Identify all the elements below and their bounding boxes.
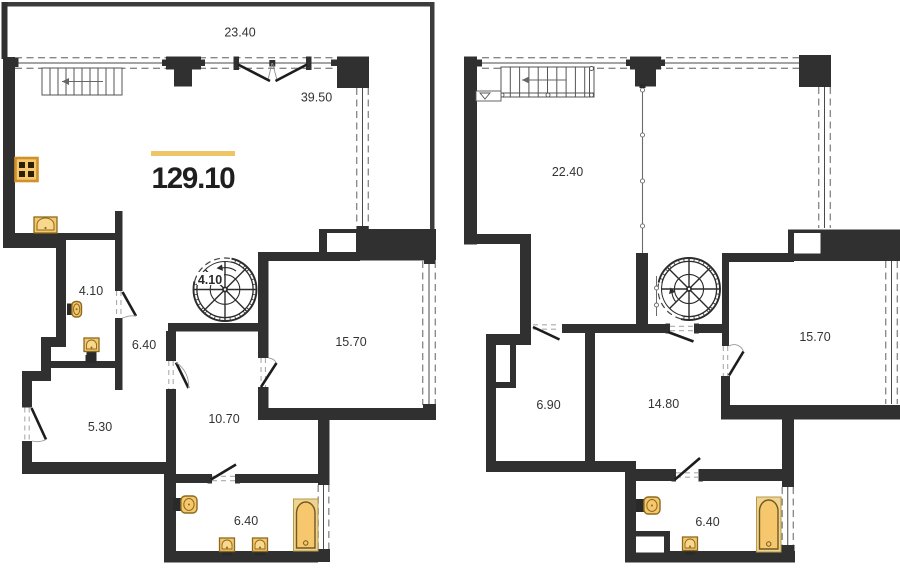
svg-text:10.70: 10.70 (208, 412, 239, 426)
svg-text:6.40: 6.40 (234, 514, 258, 528)
svg-text:129.10: 129.10 (151, 162, 235, 195)
svg-text:15.70: 15.70 (335, 335, 366, 349)
svg-text:5.30: 5.30 (88, 420, 112, 434)
svg-text:6.90: 6.90 (536, 398, 560, 412)
svg-text:6.40: 6.40 (695, 515, 719, 529)
svg-text:14.80: 14.80 (648, 397, 679, 411)
svg-text:15.70: 15.70 (799, 330, 830, 344)
svg-text:6.40: 6.40 (132, 338, 156, 352)
svg-text:39.50: 39.50 (301, 91, 332, 105)
svg-text:4.10: 4.10 (198, 273, 222, 287)
svg-text:4.10: 4.10 (79, 284, 103, 298)
svg-text:23.40: 23.40 (224, 26, 255, 40)
svg-text:22.40: 22.40 (552, 165, 583, 179)
